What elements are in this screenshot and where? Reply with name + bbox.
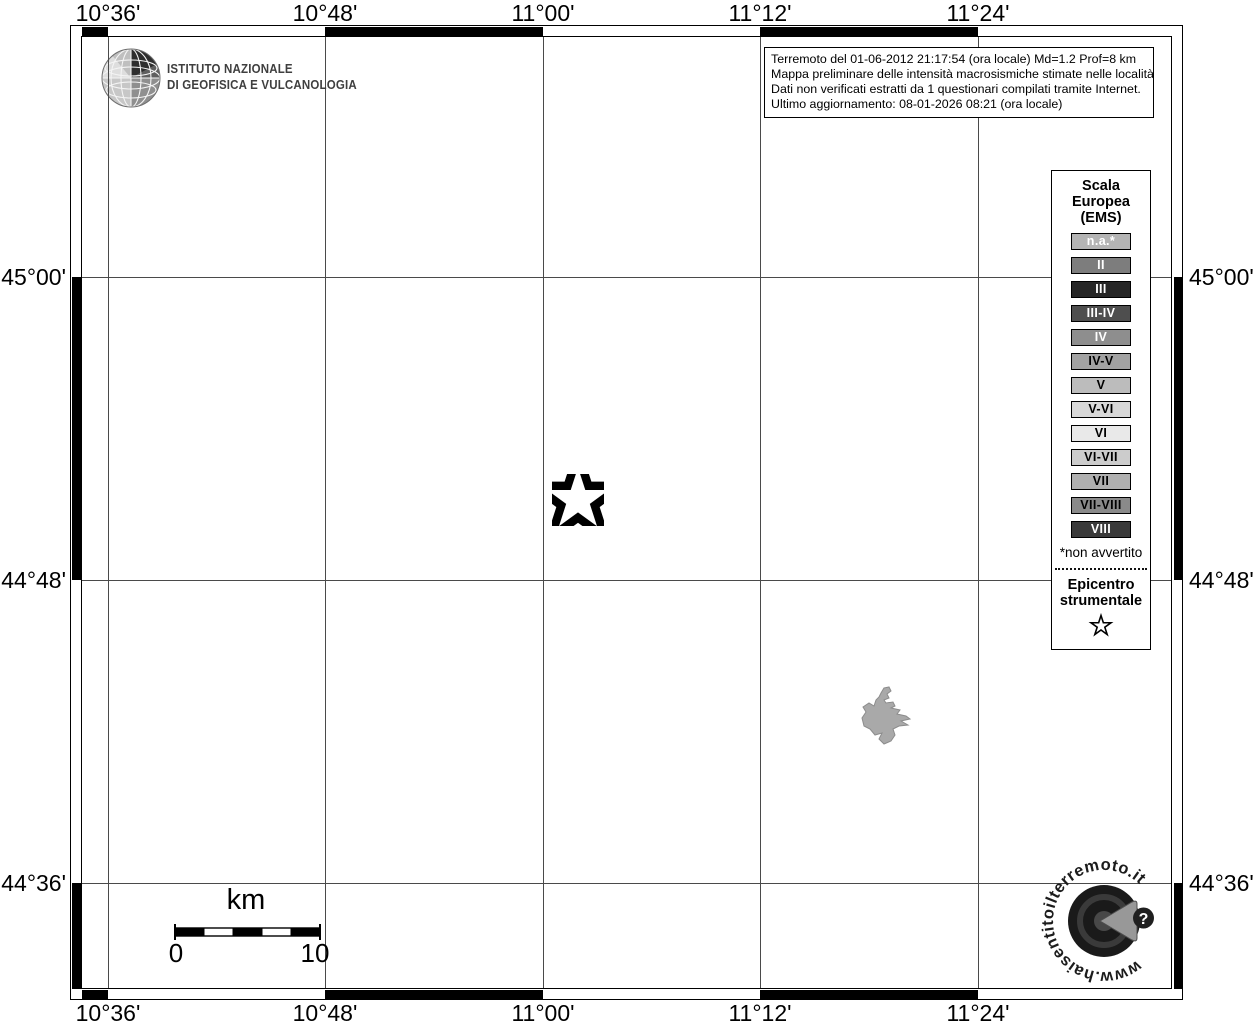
legend-chip-vii-viii: VII-VIII xyxy=(1071,497,1131,514)
axis-label-lon-top: 10°48' xyxy=(270,1,380,25)
axis-label-lon-top: 10°36' xyxy=(53,1,163,25)
legend-chip-iii-iv: III-IV xyxy=(1071,305,1131,322)
legend-epicenter-line1: Epicentro xyxy=(1052,577,1150,593)
frame-tick-segment xyxy=(82,990,108,999)
frame-tick-segment xyxy=(760,990,978,999)
help-icon: ? xyxy=(1133,908,1154,929)
legend-chip-na: n.a.* xyxy=(1071,233,1131,250)
axis-label-lat-left: 44°36' xyxy=(0,871,66,895)
axis-label-lon-top: 11°24' xyxy=(923,1,1033,25)
legend-title: Scala Europea (EMS) xyxy=(1052,178,1150,226)
axis-label-lat-left: 45°00' xyxy=(0,265,66,289)
frame-tick-segment xyxy=(72,277,81,580)
axis-label-lon-bottom: 10°36' xyxy=(53,1001,163,1024)
ingv-wordmark: ISTITUTO NAZIONALE DI GEOFISICA E VULCAN… xyxy=(167,61,357,94)
epicenter-star-marker xyxy=(552,474,604,526)
legend-epicenter-label: Epicentro strumentale xyxy=(1052,577,1150,609)
legend-chip-vi: VI xyxy=(1071,425,1131,442)
legend-footnote: *non avvertito xyxy=(1052,545,1150,560)
ingv-wordmark-line2: DI GEOFISICA E VULCANOLOGIA xyxy=(167,77,357,93)
event-info-box: Terremoto del 01-06-2012 21:17:54 (ora l… xyxy=(764,47,1154,118)
axis-label-lat-right: 45°00' xyxy=(1189,265,1254,289)
scalebar-min-label: 0 xyxy=(163,938,189,969)
axis-label-lon-bottom: 11°24' xyxy=(923,1001,1033,1024)
axis-label-lat-right: 44°36' xyxy=(1189,871,1254,895)
ingv-wordmark-line1: ISTITUTO NAZIONALE xyxy=(167,61,357,77)
axis-label-lon-top: 11°00' xyxy=(488,1,598,25)
legend-chip-ii: II xyxy=(1071,257,1131,274)
legend-title-line1: Scala xyxy=(1052,178,1150,194)
legend-chip-iii: III xyxy=(1071,281,1131,298)
frame-tick-segment xyxy=(325,27,543,36)
legend-chip-iv-v: IV-V xyxy=(1071,353,1131,370)
frame-tick-segment xyxy=(1174,277,1183,580)
legend-chip-list: n.a.* II III III-IV IV IV-V V V-VI VI VI… xyxy=(1052,233,1150,538)
scalebar-unit-label: km xyxy=(196,884,296,917)
legend-chip-v-vi: V-VI xyxy=(1071,401,1131,418)
haisentitoilterremoto-watermark: www.haisentitoilterremoto.it ? xyxy=(1028,844,1180,996)
intensity-legend: Scala Europea (EMS) n.a.* II III III-IV … xyxy=(1051,170,1151,650)
axis-label-lat-right: 44°48' xyxy=(1189,568,1254,592)
frame-tick-segment xyxy=(325,990,543,999)
axis-label-lon-bottom: 11°12' xyxy=(705,1001,815,1024)
event-info-line3: Dati non verificati estratti da 1 questi… xyxy=(771,82,1147,97)
axis-label-lon-bottom: 10°48' xyxy=(270,1001,380,1024)
svg-text:?: ? xyxy=(1139,911,1149,928)
axis-label-lat-left: 44°48' xyxy=(0,568,66,592)
legend-chip-vi-vii: VI-VII xyxy=(1071,449,1131,466)
legend-chip-v: V xyxy=(1071,377,1131,394)
scalebar-max-label: 10 xyxy=(298,938,332,969)
legend-epicenter-line2: strumentale xyxy=(1052,593,1150,609)
macroseismic-map: 10°36' 10°48' 11°00' 11°12' 11°24' 10°36… xyxy=(0,0,1254,1024)
legend-chip-viii: VIII xyxy=(1071,521,1131,538)
locality-polygon-na xyxy=(856,682,916,748)
event-info-line2: Mappa preliminare delle intensità macros… xyxy=(771,67,1147,82)
frame-tick-segment xyxy=(72,883,81,989)
map-frame-inner xyxy=(81,36,1172,989)
legend-chip-iv: IV xyxy=(1071,329,1131,346)
legend-chip-vii: VII xyxy=(1071,473,1131,490)
legend-title-line2: Europea xyxy=(1052,194,1150,210)
frame-tick-segment xyxy=(760,27,978,36)
event-info-line4: Ultimo aggiornamento: 08-01-2026 08:21 (… xyxy=(771,97,1147,112)
legend-divider xyxy=(1055,568,1147,570)
axis-label-lon-top: 11°12' xyxy=(705,1,815,25)
event-info-line1: Terremoto del 01-06-2012 21:17:54 (ora l… xyxy=(771,52,1147,67)
legend-title-line3: (EMS) xyxy=(1052,210,1150,226)
legend-star-icon xyxy=(1088,613,1114,639)
frame-tick-segment xyxy=(82,27,108,36)
axis-label-lon-bottom: 11°00' xyxy=(488,1001,598,1024)
